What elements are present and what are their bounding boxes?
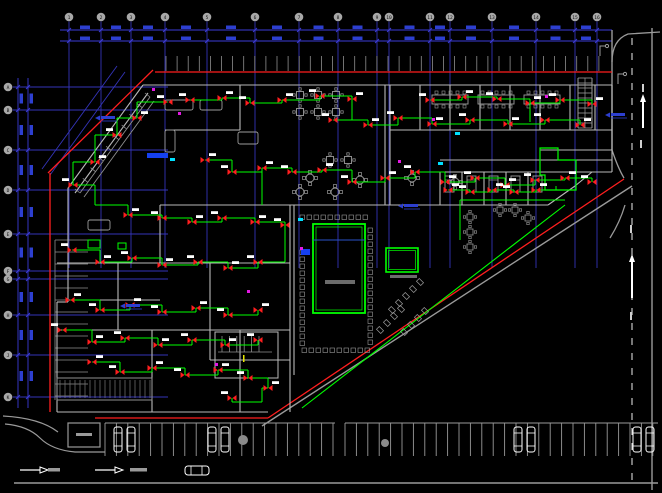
light-fixture-icon xyxy=(556,97,560,103)
light-fixture-icon xyxy=(192,305,196,311)
light-fixture-icon xyxy=(334,117,338,123)
dimension-text xyxy=(30,207,34,217)
circuit-label xyxy=(179,93,186,96)
switch-icon xyxy=(215,363,218,366)
light-fixture-icon xyxy=(121,369,125,375)
table-square xyxy=(512,207,518,213)
table-round xyxy=(356,176,364,184)
sidewalk-layer xyxy=(166,56,599,71)
dimension-text xyxy=(20,94,24,104)
circuit-label xyxy=(247,255,254,258)
light-fixture-icon xyxy=(278,97,282,103)
switch-icon xyxy=(545,95,548,98)
circuit-label xyxy=(464,171,471,174)
dimension-text xyxy=(143,37,153,41)
circuit-label xyxy=(322,113,329,116)
cad-viewport: 12345678910111213141516ABCDEFGHJK xyxy=(0,0,662,493)
circuit-label xyxy=(151,305,158,308)
light-fixture-icon xyxy=(541,117,545,123)
light-fixture-icon xyxy=(471,117,475,123)
circuit-label xyxy=(232,261,239,264)
circuit-label xyxy=(419,93,426,96)
circuit-label xyxy=(187,255,194,258)
fixture-icon xyxy=(438,162,443,165)
circuit-label xyxy=(581,175,588,178)
light-fixture-icon xyxy=(233,395,237,401)
table-round xyxy=(296,188,304,196)
circuit-label xyxy=(109,365,116,368)
switch-icon xyxy=(398,160,401,163)
dimension-text xyxy=(226,37,236,41)
dimension-text xyxy=(143,26,153,30)
dimension-text xyxy=(353,37,363,41)
grid-bubble-label: 10 xyxy=(386,15,392,21)
table-square xyxy=(467,229,473,235)
building-walls-layer xyxy=(57,78,612,412)
light-fixture-icon xyxy=(593,179,597,185)
circuit-label xyxy=(512,117,519,120)
light-fixture-icon xyxy=(126,335,130,341)
light-fixture-icon xyxy=(219,367,223,373)
table-square xyxy=(525,215,531,221)
light-fixture-icon xyxy=(191,97,195,103)
circuit-label xyxy=(496,183,503,186)
circuit-label xyxy=(217,308,224,311)
light-fixture-icon xyxy=(286,222,290,228)
circuit-label xyxy=(286,93,293,96)
circuit-label xyxy=(584,118,591,121)
light-fixture-icon xyxy=(233,169,237,175)
light-fixture-icon xyxy=(254,259,258,265)
counter-desk xyxy=(147,153,168,158)
light-fixture-icon xyxy=(416,169,420,175)
circuit-label xyxy=(141,111,148,114)
table-round xyxy=(306,174,314,182)
light-fixture-icon xyxy=(96,307,100,313)
elevation-marker-icon xyxy=(95,116,100,121)
dimension-text xyxy=(111,26,121,30)
light-fixture-icon xyxy=(93,359,97,365)
dimension-text xyxy=(30,292,34,302)
grid-bubble-label: A xyxy=(7,85,10,91)
light-fixture-icon xyxy=(186,97,190,103)
table-square xyxy=(327,157,334,164)
light-fixture-icon xyxy=(206,157,210,163)
circuit-label xyxy=(404,165,411,168)
light-fixture-icon xyxy=(566,175,570,181)
light-fixture-icon xyxy=(283,97,287,103)
light-fixture-icon xyxy=(353,96,357,102)
circuit-label xyxy=(157,95,164,98)
circuit-label xyxy=(134,298,141,301)
circuit-label xyxy=(181,333,188,336)
circuit-label xyxy=(449,175,456,178)
circuit-label xyxy=(459,113,466,116)
dimension-text xyxy=(181,26,191,30)
light-fixture-icon xyxy=(433,121,437,127)
traffic-arrow-icon xyxy=(115,467,123,473)
circuit-label xyxy=(174,368,181,371)
circuit-label xyxy=(262,303,269,306)
table-square xyxy=(497,207,503,213)
light-fixture-icon xyxy=(249,375,253,381)
circuit-label xyxy=(534,113,541,116)
light-fixture-icon xyxy=(588,179,592,185)
light-fixture-icon xyxy=(531,177,535,183)
grid-bubble-label: 6 xyxy=(254,15,257,21)
light-fixture-icon xyxy=(364,122,368,128)
dimension-text xyxy=(80,26,90,30)
grid-bubble-label: 16 xyxy=(594,15,600,21)
street-lamp-icon xyxy=(600,46,606,56)
light-fixture-icon xyxy=(546,117,550,123)
light-fixture-icon xyxy=(471,189,475,195)
circuit-label xyxy=(466,90,473,93)
circuit-label xyxy=(452,183,459,186)
circuit-label xyxy=(486,92,493,95)
circuit-label xyxy=(114,331,121,334)
circuit-label xyxy=(132,208,139,211)
circuit-label xyxy=(74,293,81,296)
circuit-label xyxy=(509,178,516,181)
circuit-label xyxy=(596,97,603,100)
dimension-text xyxy=(30,330,34,340)
circuit-label xyxy=(209,153,216,156)
circuit-label xyxy=(534,96,541,99)
dimension-text xyxy=(20,207,24,217)
circuit-label xyxy=(62,178,69,181)
circuit-label xyxy=(51,323,58,326)
dimension-text xyxy=(111,37,121,41)
grid-bubble-label: 11 xyxy=(427,15,433,21)
light-fixture-icon xyxy=(561,97,565,103)
light-fixture-icon xyxy=(91,159,95,165)
dimension-text xyxy=(551,26,561,30)
light-fixture-icon xyxy=(194,259,198,265)
elevation-marker-icon xyxy=(398,204,403,209)
elevation-marker-icon xyxy=(605,113,610,118)
circuit-label xyxy=(96,335,103,338)
light-fixture-icon xyxy=(124,212,128,218)
light-fixture-icon xyxy=(269,385,273,391)
light-fixture-icon xyxy=(153,365,157,371)
circuit-label xyxy=(221,165,228,168)
circuit-label xyxy=(503,185,510,188)
circuit-label xyxy=(200,301,207,304)
sun-lounger xyxy=(383,319,390,326)
grid-bubble-label: 3 xyxy=(130,15,133,21)
road-layer xyxy=(14,28,660,490)
dimension-text xyxy=(509,37,519,41)
light-fixture-icon xyxy=(264,385,268,391)
light-fixture-icon xyxy=(229,265,233,271)
circuit-label xyxy=(222,363,229,366)
dimension-text xyxy=(581,26,591,30)
circuit-label xyxy=(99,155,106,158)
light-fixture-icon xyxy=(133,255,137,261)
circuit-label xyxy=(237,371,244,374)
pool-area-layer xyxy=(147,153,429,353)
car-icon xyxy=(221,427,229,452)
traffic-arrow-icon xyxy=(640,94,646,102)
traffic-arrow-icon xyxy=(629,254,635,262)
light-fixture-icon xyxy=(218,215,222,221)
circuit-label xyxy=(221,391,228,394)
grid-bubble-label: 13 xyxy=(489,15,495,21)
light-fixture-icon xyxy=(228,169,232,175)
switch-icon xyxy=(300,247,303,250)
circuit-label xyxy=(356,92,363,95)
dimension-text xyxy=(314,26,324,30)
wiring-layer xyxy=(62,96,592,402)
light-fixture-icon xyxy=(93,339,97,345)
light-fixture-icon xyxy=(329,117,333,123)
dimension-text xyxy=(30,165,34,175)
sofa xyxy=(88,220,110,230)
dimension-text xyxy=(20,165,24,175)
grid-bubble-label: 14 xyxy=(533,15,539,21)
grid-bubble-label: 15 xyxy=(572,15,578,21)
grid-bubble-label: 5 xyxy=(206,15,209,21)
dimension-text xyxy=(20,292,24,302)
grid-bubble-label: 2 xyxy=(100,15,103,21)
light-fixture-icon xyxy=(588,101,592,107)
light-fixture-icon xyxy=(369,122,373,128)
switch-icon xyxy=(178,112,181,115)
circuit-label xyxy=(61,243,68,246)
circuit-label xyxy=(387,111,394,114)
circuit-label xyxy=(106,128,113,131)
dimension-text xyxy=(353,26,363,30)
light-fixture-icon xyxy=(229,312,233,318)
dimension-text xyxy=(405,26,415,30)
light-fixture-icon xyxy=(441,179,445,185)
light-fixture-icon xyxy=(281,222,285,228)
table-square xyxy=(467,244,473,250)
light-fixture-icon xyxy=(256,219,260,225)
circuit-label xyxy=(540,183,547,186)
fixture-icon xyxy=(170,158,175,161)
swimming-pool xyxy=(313,224,365,313)
grid-bubble-label: 9 xyxy=(376,15,379,21)
table-square xyxy=(467,214,473,220)
sun-lounger xyxy=(416,278,423,285)
light-fixture-icon xyxy=(293,169,297,175)
circuit-label xyxy=(121,251,128,254)
circuit-label xyxy=(162,338,169,341)
circuit-label xyxy=(151,211,158,214)
grid-bubble-label: E xyxy=(7,232,10,238)
light-fixture-icon xyxy=(193,337,197,343)
grid-bubble-label: 7 xyxy=(298,15,301,21)
light-fixture-icon xyxy=(186,372,190,378)
dimension-text xyxy=(30,371,34,381)
light-fixture-icon xyxy=(138,115,142,121)
grid-bubble-label: 12 xyxy=(447,15,453,21)
light-fixture-icon xyxy=(188,337,192,343)
light-fixture-icon xyxy=(163,215,167,221)
light-fixture-icon xyxy=(129,212,133,218)
circuit-label xyxy=(569,171,576,174)
light-fixture-icon xyxy=(197,305,201,311)
light-fixture-icon xyxy=(515,189,519,195)
light-fixture-icon xyxy=(531,100,535,106)
circuit-label xyxy=(549,93,556,96)
circuit-label xyxy=(372,118,379,121)
light-fixture-icon xyxy=(246,100,250,106)
sun-lounger xyxy=(390,312,397,319)
light-fixture-icon xyxy=(498,96,502,102)
fixture-icon xyxy=(455,132,460,135)
elevation-marker-icon xyxy=(120,304,125,309)
sun-lounger xyxy=(397,305,404,312)
light-fixture-icon xyxy=(223,215,227,221)
light-fixture-icon xyxy=(251,219,255,225)
circuit-label xyxy=(436,117,443,120)
sun-lounger xyxy=(409,285,416,292)
circuit-label xyxy=(274,218,281,221)
light-fixture-icon xyxy=(251,100,255,106)
light-fixture-icon xyxy=(504,121,508,127)
fixture-icon xyxy=(298,218,303,221)
dimension-text xyxy=(272,37,282,41)
dimension-text xyxy=(226,26,236,30)
circuit-label xyxy=(259,215,266,218)
circuit-label xyxy=(239,96,246,99)
car-icon xyxy=(633,427,641,452)
table-square xyxy=(333,109,340,116)
dimension-text xyxy=(405,37,415,41)
light-fixture-icon xyxy=(323,167,327,173)
light-fixture-icon xyxy=(158,309,162,315)
car-icon xyxy=(514,427,522,452)
grid-bubble-label: F xyxy=(7,269,10,275)
light-fixture-icon xyxy=(244,375,248,381)
sun-lounger xyxy=(388,306,395,313)
dimension-text xyxy=(272,26,282,30)
dimension-text xyxy=(509,26,519,30)
circuit-label xyxy=(196,215,203,218)
table-square xyxy=(297,92,304,99)
light-fixture-icon xyxy=(254,337,258,343)
dimension-text xyxy=(30,248,34,258)
dimension-text xyxy=(466,26,476,30)
light-fixture-icon xyxy=(58,327,62,333)
circuit-label xyxy=(96,355,103,358)
site-boundary-layer xyxy=(48,70,632,426)
grid-bubble-label: B xyxy=(7,108,10,114)
light-fixture-icon xyxy=(386,175,390,181)
light-fixture-icon xyxy=(223,95,227,101)
grid-bubble-label: H xyxy=(7,313,10,319)
street-lamp-icon xyxy=(618,74,624,84)
grid-bubble-label: K xyxy=(7,395,10,401)
circuit-label xyxy=(309,89,316,92)
light-fixture-icon xyxy=(226,342,230,348)
switch-icon xyxy=(247,290,250,293)
light-fixture-icon xyxy=(399,115,403,121)
circuit-label xyxy=(89,303,96,306)
light-fixture-icon xyxy=(96,259,100,265)
sun-lounger xyxy=(402,292,409,299)
circuit-label xyxy=(272,381,279,384)
circuit-label xyxy=(281,165,288,168)
light-fixture-icon xyxy=(254,307,258,313)
circuit-label xyxy=(104,255,111,258)
table-square xyxy=(315,109,322,116)
table-square xyxy=(345,157,352,164)
kids-pool xyxy=(386,248,418,272)
light-fixture-icon xyxy=(74,182,78,188)
dimension-text xyxy=(466,37,476,41)
table-square xyxy=(333,92,340,99)
traffic-arrow-icon xyxy=(40,467,48,473)
light-fixture-icon xyxy=(466,117,470,123)
sun-lounger xyxy=(376,326,383,333)
light-fixture-icon xyxy=(259,307,263,313)
sun-lounger xyxy=(395,299,402,306)
light-fixture-icon xyxy=(63,327,67,333)
dimension-text xyxy=(435,26,445,30)
light-fixture-icon xyxy=(394,115,398,121)
light-fixture-icon xyxy=(259,259,263,265)
grid-bubble-label: C xyxy=(7,148,10,154)
dimension-text xyxy=(20,371,24,381)
circuit-label xyxy=(341,175,348,178)
light-fixture-icon xyxy=(201,157,205,163)
device-layer xyxy=(51,89,603,401)
dimension-text xyxy=(20,330,24,340)
circuit-label xyxy=(266,161,273,164)
grid-bubble-label: J xyxy=(7,353,10,359)
circuit-label xyxy=(326,163,333,166)
light-fixture-icon xyxy=(116,369,120,375)
grid-bubble-label: G xyxy=(7,277,10,283)
circuit-label xyxy=(226,91,233,94)
dimension-text xyxy=(435,37,445,41)
light-fixture-icon xyxy=(288,169,292,175)
car-icon xyxy=(208,427,216,452)
circuit-label xyxy=(156,361,163,364)
light-fixture-icon xyxy=(228,395,232,401)
light-fixture-icon xyxy=(224,312,228,318)
light-fixture-icon xyxy=(258,165,262,171)
light-fixture-icon xyxy=(71,297,75,303)
light-fixture-icon xyxy=(163,309,167,315)
sofa xyxy=(165,130,175,152)
light-fixture-icon xyxy=(263,165,267,171)
light-fixture-icon xyxy=(199,259,203,265)
light-fixture-icon xyxy=(348,179,352,185)
circuit-label xyxy=(389,171,396,174)
light-fixture-icon xyxy=(88,339,92,345)
tree-icon xyxy=(381,439,389,447)
sun-lounger xyxy=(400,328,407,335)
circuit-label xyxy=(524,173,531,176)
light-fixture-icon xyxy=(181,372,185,378)
floor-plan-drawing: 12345678910111213141516ABCDEFGHJK xyxy=(0,0,662,493)
car-icon xyxy=(527,427,535,452)
dimension-text xyxy=(551,37,561,41)
grid-bubble-label: D xyxy=(7,188,10,194)
car-icon xyxy=(114,427,122,452)
dimension-text xyxy=(314,37,324,41)
light-fixture-icon xyxy=(431,97,435,103)
light-fixture-icon xyxy=(428,121,432,127)
dimension-text xyxy=(20,248,24,258)
light-fixture-icon xyxy=(159,342,163,348)
dimension-text xyxy=(581,37,591,41)
